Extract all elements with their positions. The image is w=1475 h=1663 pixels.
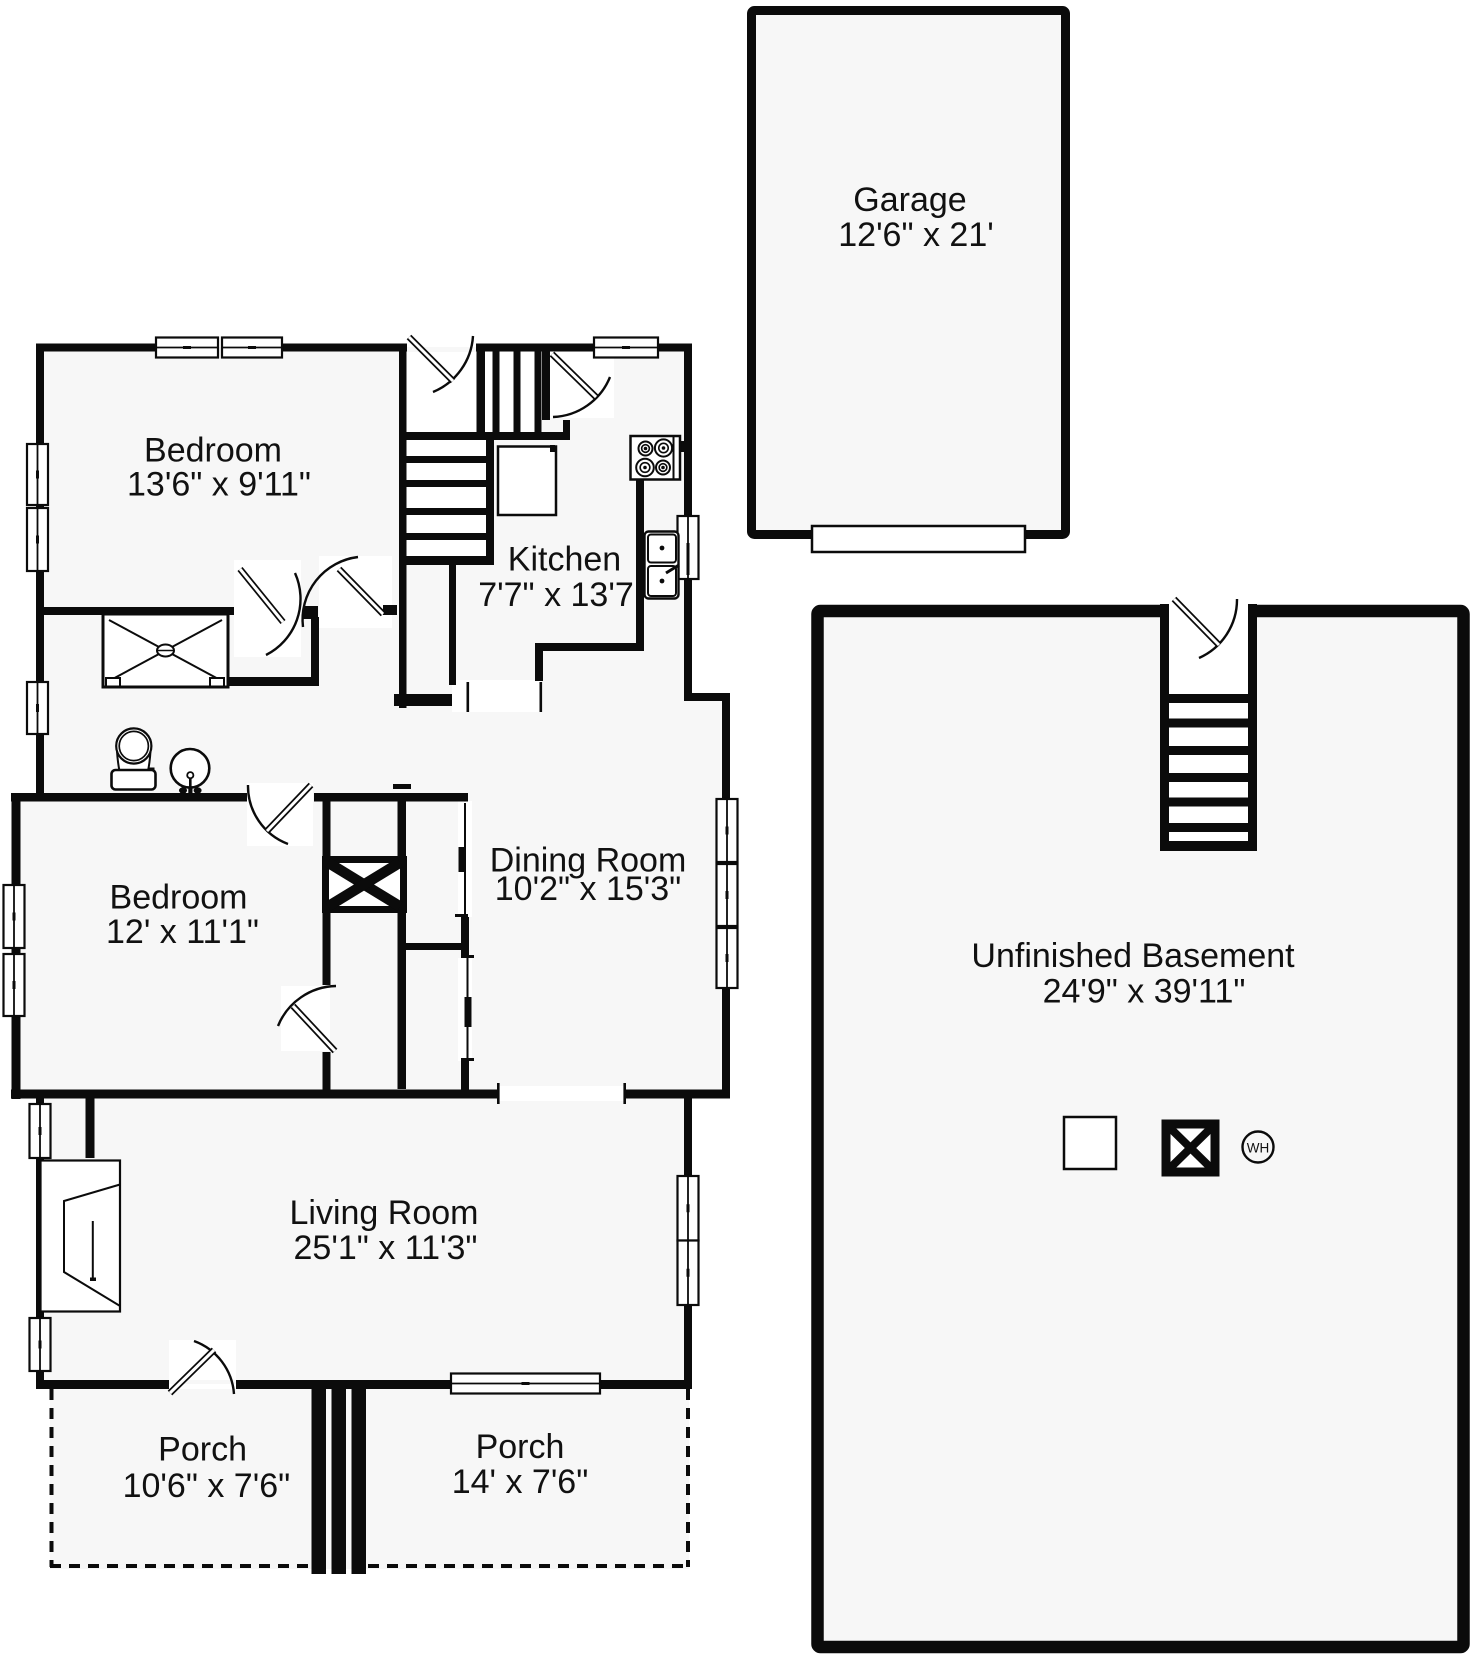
svg-text:WH: WH <box>1247 1141 1270 1156</box>
svg-text:10'6" x 7'6": 10'6" x 7'6" <box>123 1467 291 1505</box>
svg-text:Living Room: Living Room <box>290 1194 479 1232</box>
svg-text:14' x 7'6": 14' x 7'6" <box>452 1463 589 1501</box>
svg-text:Bedroom: Bedroom <box>144 432 282 470</box>
svg-text:Garage: Garage <box>853 181 966 219</box>
svg-text:10'2" x 15'3": 10'2" x 15'3" <box>495 870 681 908</box>
svg-text:Unfinished Basement: Unfinished Basement <box>971 937 1295 975</box>
svg-text:Kitchen: Kitchen <box>508 541 621 579</box>
svg-text:25'1" x 11'3": 25'1" x 11'3" <box>294 1229 478 1267</box>
svg-text:Porch: Porch <box>476 1428 565 1466</box>
svg-text:12'6" x 21': 12'6" x 21' <box>838 216 994 254</box>
svg-text:Bedroom: Bedroom <box>110 879 248 917</box>
svg-text:24'9" x 39'11": 24'9" x 39'11" <box>1043 973 1246 1011</box>
svg-text:13'6" x 9'11": 13'6" x 9'11" <box>127 466 311 504</box>
svg-text:Porch: Porch <box>158 1430 247 1468</box>
svg-text:12' x 11'1": 12' x 11'1" <box>106 913 259 951</box>
svg-text:7'7" x 13'7: 7'7" x 13'7 <box>478 576 634 614</box>
